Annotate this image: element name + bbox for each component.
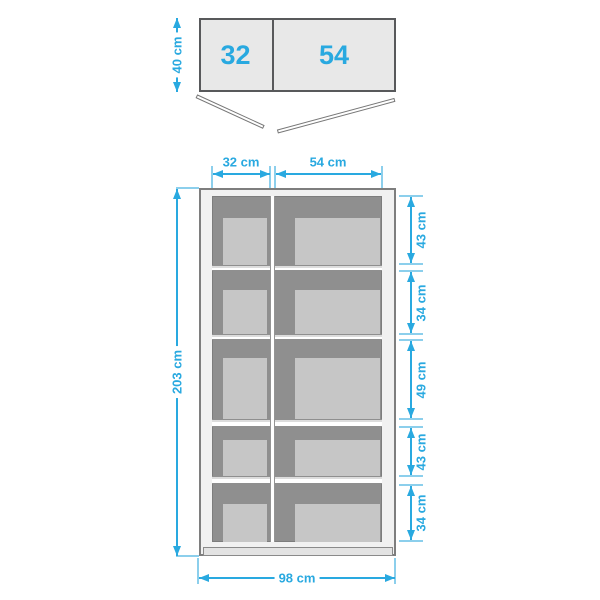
top-view-right-door-width: 54 (272, 18, 396, 92)
total-width-label: 98 cm (275, 570, 320, 587)
section-2-label: 34 cm (415, 285, 428, 322)
compartment-back-panel (223, 358, 267, 419)
section-5-label: 34 cm (415, 495, 428, 532)
section-3-label: 49 cm (415, 362, 428, 399)
extension-line (399, 333, 423, 335)
arrow-right-icon (385, 574, 395, 582)
extension-line (399, 263, 423, 265)
section-1-label: 43 cm (415, 212, 428, 249)
arrow-up-icon (407, 272, 415, 282)
depth-arrow-down-icon (173, 82, 181, 92)
compartment-back-panel (223, 504, 267, 542)
arrow-up-icon (407, 197, 415, 207)
height-arrow-down-icon (173, 546, 181, 556)
compartment-back-panel (295, 440, 380, 477)
compartment-back-panel (223, 218, 267, 265)
front-view-center-divider (270, 196, 275, 542)
arrow-left-icon (199, 574, 209, 582)
compartment-back-panel (295, 290, 380, 334)
open-door-left-icon (196, 95, 264, 128)
arrow-up-icon (407, 341, 415, 351)
shelf (212, 419, 382, 427)
height-dimension-label: 203 cm (169, 346, 186, 398)
compartment-back-panel (223, 440, 267, 477)
arrow-down-icon (407, 323, 415, 333)
arrow-down-icon (407, 530, 415, 540)
arrow-right-icon (260, 170, 270, 178)
extension-line (399, 418, 423, 420)
arrow-left-icon (276, 170, 286, 178)
section-dimension-line (410, 341, 412, 418)
extension-line (399, 540, 423, 542)
section-4-label: 43 cm (415, 434, 428, 471)
right-width-dimension-line (276, 173, 381, 175)
open-doors-graphic (190, 90, 405, 135)
compartment-back-panel (223, 290, 267, 334)
depth-arrow-up-icon (173, 18, 181, 28)
height-arrow-up-icon (173, 189, 181, 199)
right-width-label: 54 cm (310, 156, 347, 169)
compartment-back-panel (295, 218, 380, 265)
top-view-left-door-width: 32 (199, 18, 272, 92)
wardrobe-dimension-diagram: 32 54 40 cm 32 cm 54 cm 2 (0, 0, 600, 600)
depth-dimension-label: 40 cm (169, 33, 186, 78)
compartment-back-panel (295, 504, 380, 542)
shelf (212, 476, 382, 484)
open-door-right-icon (278, 99, 395, 133)
arrow-left-icon (213, 170, 223, 178)
plinth (203, 547, 393, 556)
shelf (212, 334, 382, 340)
arrow-down-icon (407, 253, 415, 263)
shelf (212, 265, 382, 271)
left-width-label: 32 cm (223, 156, 260, 169)
extension-line (381, 166, 383, 188)
compartment-back-panel (295, 358, 380, 419)
arrow-down-icon (407, 408, 415, 418)
extension-line (399, 475, 423, 477)
arrow-right-icon (371, 170, 381, 178)
